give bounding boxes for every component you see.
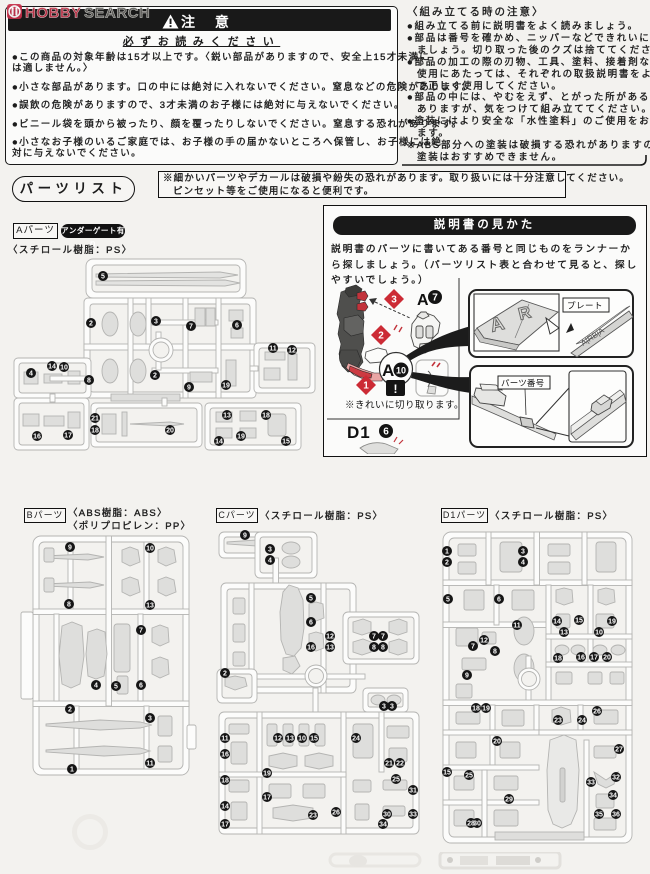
svg-text:22: 22: [396, 761, 404, 768]
svg-text:4: 4: [268, 558, 272, 565]
svg-text:3: 3: [268, 547, 272, 554]
svg-text:33: 33: [587, 780, 595, 787]
svg-text:2: 2: [223, 671, 227, 678]
svg-text:6: 6: [383, 427, 389, 438]
svg-text:8: 8: [493, 649, 497, 656]
svg-text:8: 8: [381, 645, 385, 652]
svg-text:8: 8: [67, 602, 71, 609]
svg-text:8: 8: [372, 645, 376, 652]
svg-text:34: 34: [379, 822, 387, 829]
svg-text:13: 13: [146, 603, 154, 610]
svg-text:3: 3: [154, 319, 158, 326]
svg-text:9: 9: [243, 533, 247, 540]
svg-text:8: 8: [87, 378, 91, 385]
svg-text:4: 4: [94, 683, 98, 690]
svg-text:20: 20: [166, 428, 174, 435]
svg-text:19: 19: [482, 706, 490, 713]
svg-text:4: 4: [521, 560, 525, 567]
svg-text:19: 19: [237, 434, 245, 441]
svg-text:11: 11: [269, 346, 277, 353]
svg-text:※きれいに切り取ります。: ※きれいに切り取ります。: [345, 400, 464, 411]
svg-text:12: 12: [480, 638, 488, 645]
svg-text:18: 18: [262, 413, 270, 420]
svg-text:30: 30: [383, 812, 391, 819]
svg-text:29: 29: [505, 797, 513, 804]
svg-text:18: 18: [554, 656, 562, 663]
svg-text:16: 16: [221, 752, 229, 759]
svg-text:A: A: [382, 361, 394, 380]
svg-text:9: 9: [187, 385, 191, 392]
svg-text:25: 25: [392, 777, 400, 784]
svg-text:3: 3: [382, 704, 386, 711]
svg-text:13: 13: [223, 413, 231, 420]
svg-text:5: 5: [446, 597, 450, 604]
svg-text:10: 10: [146, 546, 154, 553]
svg-text:24: 24: [352, 736, 360, 743]
svg-text:35: 35: [595, 812, 603, 819]
svg-text:17: 17: [590, 655, 598, 662]
svg-text:5: 5: [309, 596, 313, 603]
svg-text:26: 26: [332, 810, 340, 817]
svg-text:10: 10: [396, 366, 406, 376]
svg-text:11: 11: [221, 736, 229, 743]
svg-text:20: 20: [493, 739, 501, 746]
svg-text:7: 7: [471, 644, 475, 651]
svg-text:12: 12: [274, 736, 282, 743]
svg-text:16: 16: [33, 434, 41, 441]
svg-text:23: 23: [309, 813, 317, 820]
svg-text:18: 18: [472, 706, 480, 713]
svg-text:36: 36: [612, 812, 620, 819]
svg-text:31: 31: [409, 788, 417, 795]
svg-text:3: 3: [391, 295, 397, 306]
svg-text:16: 16: [577, 655, 585, 662]
svg-text:19: 19: [263, 771, 271, 778]
svg-text:HOBBY: HOBBY: [25, 5, 82, 22]
svg-text:プレート: プレート: [567, 301, 603, 311]
svg-text:2: 2: [153, 373, 157, 380]
svg-text:2: 2: [89, 321, 93, 328]
svg-text:3: 3: [521, 549, 525, 556]
svg-text:1: 1: [70, 767, 74, 774]
svg-text:19: 19: [608, 619, 616, 626]
svg-text:13: 13: [286, 736, 294, 743]
svg-text:7: 7: [139, 628, 143, 635]
svg-text:25: 25: [465, 773, 473, 780]
svg-text:16: 16: [307, 645, 315, 652]
svg-text:7: 7: [372, 634, 376, 641]
svg-text:パーツ番号: パーツ番号: [501, 378, 544, 388]
svg-text:12: 12: [326, 634, 334, 641]
svg-text:2: 2: [378, 331, 384, 342]
svg-text:24: 24: [578, 718, 586, 725]
svg-text:14: 14: [48, 364, 56, 371]
svg-text:1: 1: [445, 549, 449, 556]
svg-text:3: 3: [390, 704, 394, 711]
svg-text:12: 12: [288, 348, 296, 355]
svg-text:2: 2: [68, 707, 72, 714]
svg-text:21: 21: [385, 761, 393, 768]
svg-text:6: 6: [139, 683, 143, 690]
svg-text:10: 10: [60, 365, 68, 372]
svg-text:11: 11: [146, 761, 154, 768]
svg-text:14: 14: [221, 804, 229, 811]
svg-text:9: 9: [465, 673, 469, 680]
svg-text:6: 6: [497, 597, 501, 604]
svg-text:4: 4: [29, 371, 33, 378]
svg-text:15: 15: [282, 439, 290, 446]
svg-text:9: 9: [68, 545, 72, 552]
svg-text:SEARCH: SEARCH: [84, 5, 150, 22]
svg-text:21: 21: [91, 416, 99, 423]
svg-text:10: 10: [595, 630, 603, 637]
svg-text:5: 5: [101, 274, 105, 281]
svg-text:15: 15: [575, 618, 583, 625]
svg-text:15: 15: [310, 736, 318, 743]
svg-text:15: 15: [443, 770, 451, 777]
svg-text:19: 19: [222, 383, 230, 390]
svg-text:14: 14: [215, 439, 223, 446]
svg-text:30: 30: [473, 821, 481, 828]
svg-text:13: 13: [326, 645, 334, 652]
svg-text:5: 5: [114, 684, 118, 691]
svg-text:10: 10: [298, 736, 306, 743]
svg-text:A: A: [417, 292, 429, 309]
svg-text:33: 33: [409, 812, 417, 819]
svg-text:6: 6: [235, 323, 239, 330]
svg-text:23: 23: [554, 718, 562, 725]
svg-text:6: 6: [309, 620, 313, 627]
svg-text:17: 17: [263, 795, 271, 802]
svg-text:17: 17: [64, 433, 72, 440]
svg-text:1: 1: [363, 381, 369, 392]
svg-text:32: 32: [612, 775, 620, 782]
svg-text:2: 2: [445, 560, 449, 567]
svg-text:20: 20: [603, 655, 611, 662]
svg-text:17: 17: [221, 822, 229, 829]
svg-text:7: 7: [189, 324, 193, 331]
svg-text:13: 13: [560, 630, 568, 637]
svg-text:18: 18: [91, 428, 99, 435]
svg-text:27: 27: [615, 747, 623, 754]
svg-text:7: 7: [381, 634, 385, 641]
svg-text:11: 11: [513, 623, 521, 630]
svg-text:D1: D1: [347, 423, 371, 442]
svg-text:!: !: [394, 382, 398, 396]
svg-text:26: 26: [593, 709, 601, 716]
svg-text:7: 7: [432, 293, 438, 304]
svg-text:14: 14: [553, 619, 561, 626]
svg-text:3: 3: [148, 716, 152, 723]
svg-text:34: 34: [609, 793, 617, 800]
svg-text:18: 18: [221, 778, 229, 785]
